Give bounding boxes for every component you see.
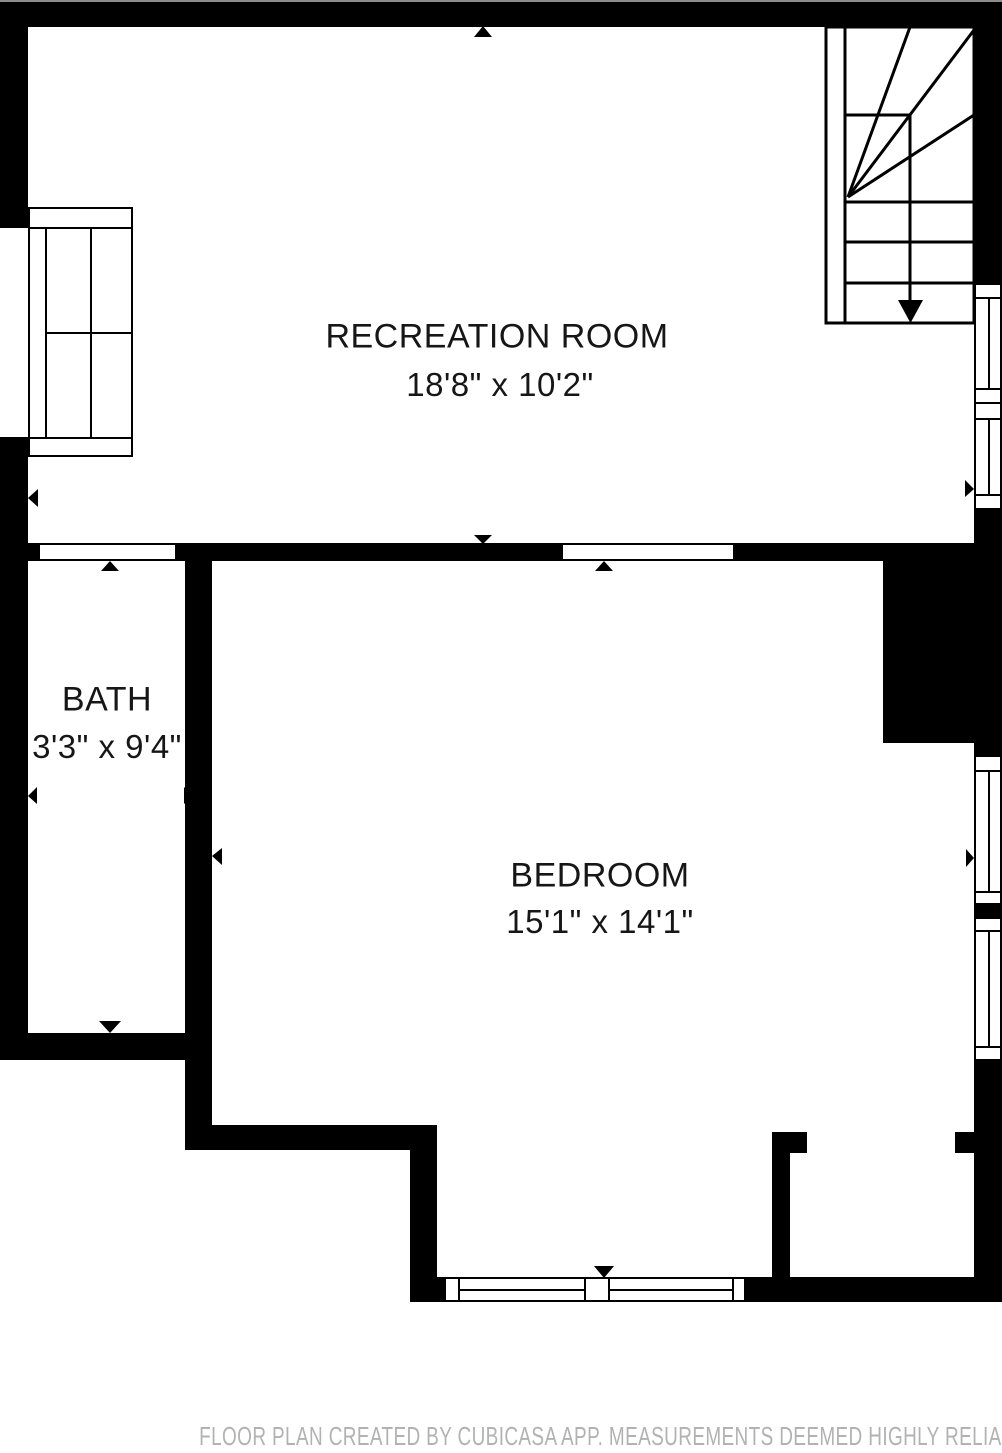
door-marker-right-lower — [966, 849, 974, 867]
wall-mid-stub — [28, 543, 40, 561]
door-marker-top-wall — [474, 26, 492, 37]
opening-line — [40, 559, 175, 561]
door-marker-recreation-left — [28, 489, 38, 507]
wall-closet-stem — [772, 1153, 790, 1277]
wall-left-lower — [0, 437, 28, 1060]
room-label-bedroom: BEDROOM — [510, 857, 689, 896]
wall-right-mid — [974, 510, 1002, 755]
window-right-mid — [974, 755, 1002, 905]
wall-step-vertical — [410, 1125, 437, 1302]
door-marker-bedroom-entry — [595, 561, 613, 571]
stair-winder-line — [848, 27, 910, 197]
room-label-recreation: RECREATION ROOM — [325, 318, 668, 357]
opening-line — [563, 559, 733, 561]
top-edge-line — [0, 0, 1002, 2]
wall-right-lower — [974, 1061, 1002, 1302]
door-marker-bedroom-left — [212, 848, 222, 865]
room-dims-recreation: 18'8" x 10'2" — [406, 366, 593, 404]
room-dims-bedroom: 15'1" x 14'1" — [506, 903, 693, 941]
window-left — [28, 207, 133, 457]
window-frame-line — [608, 1289, 734, 1291]
wall-chimney-mass — [883, 543, 975, 743]
room-dims-bath: 3'3" x 9'4" — [32, 728, 182, 766]
window-right-lower — [974, 917, 1002, 1061]
wall-bath-bottom — [0, 1033, 193, 1060]
wall-step-horizontal — [185, 1125, 437, 1150]
window-frame-line — [976, 402, 1000, 404]
wall-left-upper — [0, 27, 28, 228]
window-frame-line — [458, 1289, 586, 1291]
wall-right-mullion — [974, 905, 1002, 917]
wall-closet-cap — [772, 1132, 807, 1153]
door-marker-bath-bottom — [99, 1021, 121, 1033]
stair-direction-arrow — [898, 300, 923, 323]
window-bottom — [444, 1277, 746, 1302]
door-marker-right-upper — [965, 480, 974, 497]
opening-line — [563, 543, 733, 545]
door-marker-bath-left — [28, 787, 37, 804]
footer-disclaimer-text: FLOOR PLAN CREATED BY CUBICASA APP. MEAS… — [199, 1421, 1002, 1452]
staircase — [820, 20, 1002, 330]
stair-rail — [826, 27, 845, 323]
wall-bath-bedroom-divider — [185, 543, 212, 1150]
opening-line — [40, 543, 175, 545]
window-mullion-line — [988, 930, 990, 1048]
window-mullion-line — [988, 770, 990, 893]
footer-disclaimer: FLOOR PLAN CREATED BY CUBICASA APP. MEAS… — [0, 1421, 1002, 1453]
window-frame-line — [45, 332, 131, 334]
window-mullion-line — [988, 418, 990, 496]
wall-bottom-right — [746, 1277, 1002, 1302]
room-label-bath: BATH — [62, 681, 152, 720]
door-marker-bath-entry — [101, 561, 119, 571]
wall-bottom-stub — [437, 1277, 444, 1302]
floor-plan: RECREATION ROOM 18'8" x 10'2" BATH 3'3" … — [0, 0, 1002, 1453]
wall-mid-left — [175, 543, 563, 561]
